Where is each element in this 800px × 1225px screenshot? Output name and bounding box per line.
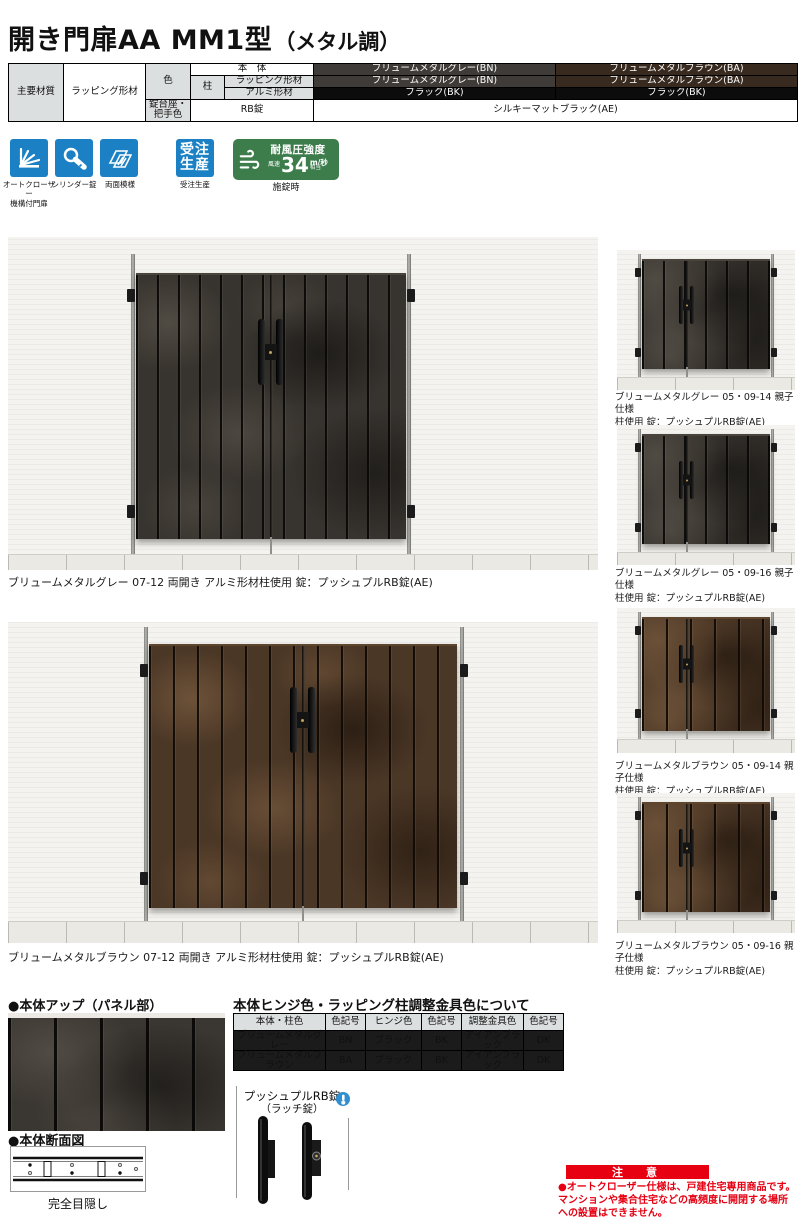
auto-closer-badge bbox=[10, 139, 48, 177]
catalog-page: 開き門扉AA MM1型 （メタル調） 主要材質 ラッピング形材 色 本 体 ブリ… bbox=[0, 0, 800, 1225]
gate-panel bbox=[149, 644, 457, 908]
spec-main-material-value: ラッピング形材 bbox=[64, 64, 146, 122]
gate-hinge bbox=[771, 709, 777, 718]
handle-bar bbox=[276, 319, 283, 385]
spec-wrap-label: ラッピング形材 bbox=[225, 76, 314, 88]
gate-panel bbox=[642, 259, 770, 369]
hinge-cell: BA bbox=[326, 1051, 366, 1071]
handle-bar bbox=[308, 687, 315, 753]
hinge-header: 本体・柱色 bbox=[234, 1014, 326, 1031]
spec-alumi-label: アルミ形材 bbox=[225, 88, 314, 100]
gate-hinge bbox=[635, 348, 641, 357]
hinge-cell: ブラック bbox=[366, 1031, 422, 1051]
gate-hinge bbox=[771, 268, 777, 277]
spec-table: 主要材質 ラッピング形材 色 本 体 ブリュームメタルグレー(BN) ブリューム… bbox=[8, 63, 798, 122]
hinge-color-table: 本体・柱色 色記号 ヒンジ色 色記号 調整金具色 色記号 ブリュームメタルグレー… bbox=[233, 1013, 564, 1071]
gate-hinge bbox=[771, 348, 777, 357]
gate-hinge bbox=[460, 664, 468, 677]
page-title: 開き門扉AA MM1型 （メタル調） bbox=[8, 18, 400, 57]
gate-hinge bbox=[140, 664, 148, 677]
hinge-header: 調整金具色 bbox=[462, 1014, 524, 1031]
gate-latch bbox=[683, 475, 691, 486]
gate-handles bbox=[679, 461, 694, 499]
handle-bar bbox=[690, 829, 694, 867]
cross-section-diagram bbox=[10, 1146, 146, 1196]
gate-hinge bbox=[407, 289, 415, 302]
spec-alumi-brown-swatch: ブラック(BK) bbox=[556, 88, 798, 100]
notice-title-bar: 注 意 bbox=[566, 1165, 709, 1179]
hinge-cell: DK bbox=[524, 1031, 564, 1051]
gate-panel bbox=[642, 802, 770, 912]
panel-closeup-image bbox=[8, 1013, 225, 1131]
gate-handles bbox=[290, 687, 315, 753]
gate-panel bbox=[136, 273, 406, 539]
wind-suffix: 相当 bbox=[310, 166, 321, 172]
spec-body-brown-swatch: ブリュームメタルブラウン(BA) bbox=[556, 64, 798, 76]
gate-hinge bbox=[771, 811, 777, 820]
gate-latch bbox=[683, 843, 691, 854]
hinge-cell: BN bbox=[326, 1031, 366, 1051]
hinge-cell: ブラック bbox=[366, 1051, 422, 1071]
spec-wrap-gray-swatch: ブリュームメタルグレー(BN) bbox=[314, 76, 556, 88]
wind-icon bbox=[238, 147, 264, 173]
spec-color-label: 色 bbox=[146, 64, 191, 100]
hinge-header: 色記号 bbox=[326, 1014, 366, 1031]
spec-alumi-gray-swatch: ブラック(BK) bbox=[314, 88, 556, 100]
hinge-cell: アイアンブラック bbox=[462, 1031, 524, 1051]
gate-hinge bbox=[635, 523, 641, 532]
wind-pressure-badge: 耐風圧強度 風速 34 m/秒 相当 bbox=[233, 139, 339, 180]
spec-body-gray-swatch: ブリュームメタルグレー(BN) bbox=[314, 64, 556, 76]
thumb-caption: ブリュームメタルブラウン 05・09-16 親子仕様 柱使用 錠：プッシュプルR… bbox=[615, 941, 800, 978]
photo1-caption: ブリュームメタルグレー 07-12 両開き アルミ形材柱使用 錠：プッシュプルR… bbox=[8, 574, 433, 590]
hinge-cell: DK bbox=[524, 1051, 564, 1071]
spec-lock-part-label: RB錠 bbox=[191, 100, 314, 122]
wind-text: 耐風圧強度 風速 34 m/秒 相当 bbox=[268, 145, 328, 174]
gate-hinge bbox=[140, 872, 148, 885]
gate-hinge bbox=[635, 891, 641, 900]
tile-floor bbox=[8, 921, 598, 943]
made-to-order-label: 受注生産 bbox=[168, 180, 222, 189]
section-divider bbox=[236, 1086, 237, 1198]
page-title-main: 開き門扉AA MM1型 bbox=[8, 18, 272, 57]
hinge-table-title: 本体ヒンジ色・ラッピング柱調整金具色について bbox=[233, 994, 530, 1014]
spec-lock-base-label: 錠台座・把手色 bbox=[146, 100, 191, 122]
thumb-caption: ブリュームメタルグレー 05・09-14 親子仕様 柱使用 錠：プッシュプルRB… bbox=[615, 392, 800, 429]
spec-body-label: 本 体 bbox=[191, 64, 314, 76]
hinge-cell: ブリュームメタルブラウン bbox=[234, 1051, 326, 1071]
notice-text: ●オートクローザー仕様は、戸建住宅専用商品です。マンションや集合住宅などの高頻度… bbox=[558, 1181, 796, 1220]
push-lock-icon bbox=[336, 1091, 350, 1110]
thumb-gray-0916 bbox=[617, 425, 795, 565]
hinge-row: ブリュームメタルブラウン BA ブラック BK アイアンブラック DK bbox=[234, 1051, 564, 1071]
cross-section-caption: 完全目隠し bbox=[10, 1195, 146, 1212]
gate-handles bbox=[679, 286, 694, 324]
gate-hinge bbox=[460, 872, 468, 885]
hinge-cell: アイアンブラック bbox=[462, 1051, 524, 1071]
gate-panel bbox=[642, 617, 770, 731]
page-title-sub: （メタル調） bbox=[274, 26, 400, 56]
hinge-header: 色記号 bbox=[524, 1014, 564, 1031]
thumb-caption: ブリュームメタルグレー 05・09-16 親子仕様 柱使用 錠：プッシュプルRB… bbox=[615, 568, 800, 605]
gate-hinge bbox=[635, 268, 641, 277]
wind-value: 34 bbox=[281, 157, 309, 174]
wind-prefix: 風速 bbox=[268, 162, 280, 168]
double-sided-icon bbox=[106, 145, 132, 171]
hinge-cell: ブリュームメタルグレー bbox=[234, 1031, 326, 1051]
made-to-order-badge: 受注 生産 bbox=[176, 139, 214, 177]
cylinder-lock-icon bbox=[61, 145, 87, 171]
gate-hinge bbox=[127, 505, 135, 518]
hinge-cell: BK bbox=[422, 1031, 462, 1051]
gate-latch bbox=[683, 659, 691, 670]
spec-pillar-label: 柱 bbox=[191, 76, 225, 100]
photo-gray-double-gate bbox=[8, 237, 598, 570]
double-sided-badge bbox=[100, 139, 138, 177]
gate-latch bbox=[297, 712, 309, 728]
gate-latch bbox=[265, 344, 277, 360]
photo2-caption: ブリュームメタルブラウン 07-12 両開き アルミ形材柱使用 錠：プッシュプル… bbox=[8, 949, 444, 965]
tile-floor bbox=[617, 920, 795, 933]
thumb-brown-0914 bbox=[617, 608, 795, 753]
gate-hinge bbox=[771, 523, 777, 532]
spec-main-material-label: 主要材質 bbox=[9, 64, 64, 122]
gate-hinge bbox=[635, 709, 641, 718]
gate-latch bbox=[683, 300, 691, 311]
thumb-brown-0916 bbox=[617, 793, 795, 933]
photo-brown-double-gate bbox=[8, 622, 598, 943]
push-pull-lock-name: プッシュプルRB錠 bbox=[242, 1089, 342, 1103]
auto-closer-icon bbox=[16, 145, 42, 171]
double-sided-label: 両面模様 bbox=[95, 180, 145, 189]
tile-floor bbox=[617, 377, 795, 390]
handle-bar bbox=[690, 286, 694, 324]
spec-wrap-brown-swatch: ブリュームメタルブラウン(BA) bbox=[556, 76, 798, 88]
handle-bar bbox=[690, 461, 694, 499]
panel-up-title: ●本体アップ（パネル部） bbox=[8, 995, 162, 1014]
gate-hinge bbox=[635, 811, 641, 820]
tile-floor bbox=[617, 739, 795, 753]
gate-handles bbox=[258, 319, 283, 385]
wind-caption: 施錠時 bbox=[233, 183, 339, 194]
gate-panel bbox=[642, 434, 770, 544]
gate-hinge bbox=[771, 891, 777, 900]
gate-hinge bbox=[407, 505, 415, 518]
hinge-header: ヒンジ色 bbox=[366, 1014, 422, 1031]
gate-hinge bbox=[771, 443, 777, 452]
gate-hinge bbox=[635, 443, 641, 452]
hinge-header: 色記号 bbox=[422, 1014, 462, 1031]
handle-bar bbox=[690, 645, 694, 683]
section-divider bbox=[348, 1118, 349, 1190]
gate-handles bbox=[679, 829, 694, 867]
gate-hinge bbox=[127, 289, 135, 302]
tile-floor bbox=[617, 552, 795, 565]
cylinder-lock-badge bbox=[55, 139, 93, 177]
gate-handles bbox=[679, 645, 694, 683]
push-pull-lock-drawing bbox=[248, 1110, 340, 1218]
thumb-gray-0914 bbox=[617, 250, 795, 390]
hinge-cell: BK bbox=[422, 1051, 462, 1071]
gate-hinge bbox=[771, 626, 777, 635]
gate-hinge bbox=[635, 626, 641, 635]
made-to-order-icon-text: 受注 生産 bbox=[180, 143, 210, 172]
hinge-row: ブリュームメタルグレー BN ブラック BK アイアンブラック DK bbox=[234, 1031, 564, 1051]
tile-floor bbox=[8, 554, 598, 570]
spec-lock-value: シルキーマットブラック(AE) bbox=[314, 100, 798, 122]
